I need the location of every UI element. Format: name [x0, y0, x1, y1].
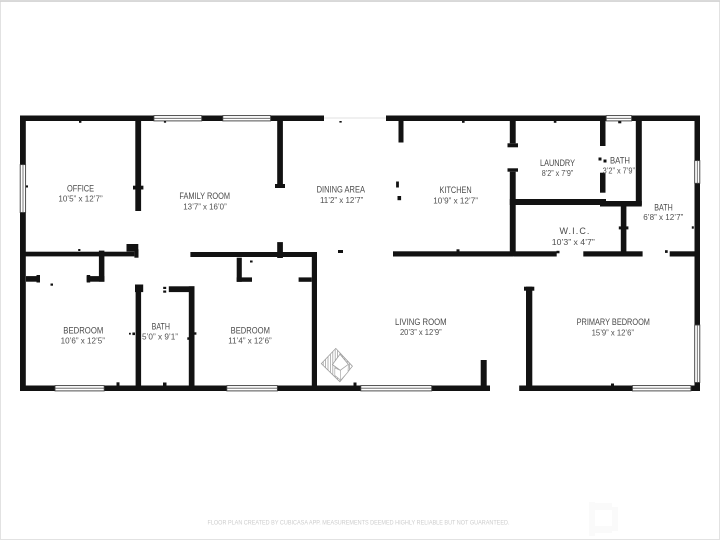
svg-text:BEDROOM: BEDROOM [231, 325, 270, 335]
svg-text:BATH: BATH [610, 155, 630, 165]
svg-text:20’3” x 12’9”: 20’3” x 12’9” [400, 327, 442, 337]
svg-text:BATH: BATH [152, 321, 170, 331]
svg-text:10’6” x 12’5”: 10’6” x 12’5” [61, 336, 105, 346]
svg-text:8’2” x 7’9”: 8’2” x 7’9” [542, 168, 574, 178]
svg-text:FAMILY ROOM: FAMILY ROOM [179, 191, 230, 201]
svg-text:6’8” x 12’7”: 6’8” x 12’7” [643, 212, 683, 222]
svg-text:10’3” x 4’7”: 10’3” x 4’7” [552, 237, 595, 247]
svg-text:3’2” x 7’9”: 3’2” x 7’9” [603, 165, 635, 175]
svg-text:5’0” x 9’1”: 5’0” x 9’1” [142, 332, 178, 342]
svg-text:W.I.C.: W.I.C. [559, 226, 590, 236]
svg-text:KITCHEN: KITCHEN [440, 185, 472, 195]
svg-text:10’9” x 12’7”: 10’9” x 12’7” [433, 195, 478, 205]
svg-text:PRIMARY BEDROOM: PRIMARY BEDROOM [577, 317, 650, 327]
svg-text:11’2” x 12’7”: 11’2” x 12’7” [320, 195, 363, 205]
svg-text:LAUNDRY: LAUNDRY [540, 158, 575, 168]
svg-text:DINING AREA: DINING AREA [317, 185, 365, 195]
svg-text:15’9” x 12’6”: 15’9” x 12’6” [592, 327, 634, 337]
svg-text:11’4” x 12’6”: 11’4” x 12’6” [228, 336, 272, 346]
svg-text:FLOOR PLAN CREATED BY CUBICASA: FLOOR PLAN CREATED BY CUBICASA APP. MEAS… [208, 521, 510, 527]
svg-text:10’5” x 12’7”: 10’5” x 12’7” [58, 194, 102, 204]
svg-text:BEDROOM: BEDROOM [63, 325, 103, 335]
svg-text:OFFICE: OFFICE [67, 183, 94, 193]
svg-text:LIVING ROOM: LIVING ROOM [395, 317, 447, 327]
svg-text:13’7” x 16’0”: 13’7” x 16’0” [183, 202, 227, 212]
